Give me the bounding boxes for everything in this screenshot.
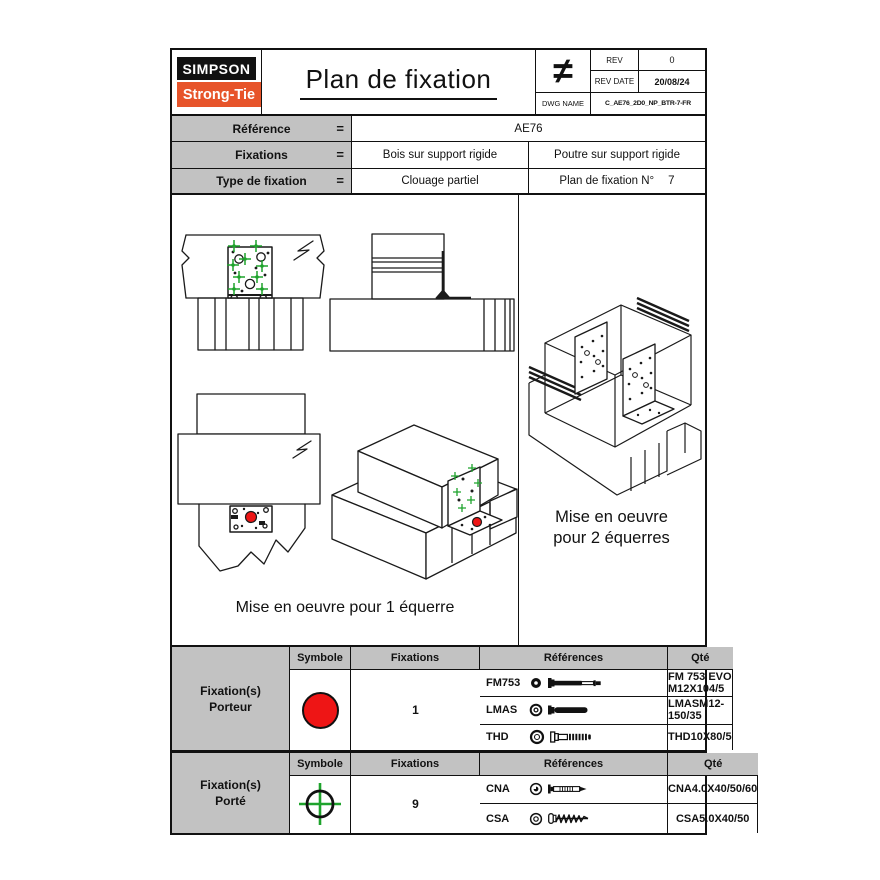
technical-drawing-two-brackets bbox=[519, 195, 704, 645]
reference-label-cell: Référence = bbox=[172, 116, 352, 141]
group-label-porte: Fixation(s) Porté bbox=[172, 753, 290, 833]
ring-end-view-icon bbox=[529, 729, 545, 745]
group-line: Fixation(s) bbox=[200, 683, 261, 699]
reference-cell: FM 753 EVO M12X104/5 bbox=[668, 670, 733, 697]
type-fixation-label-cell: Type de fixation = bbox=[172, 169, 352, 193]
fixations-value-left: Bois sur support rigide bbox=[352, 142, 528, 167]
washer-end-view-icon bbox=[529, 703, 543, 717]
fixation-row-csa: CSA bbox=[480, 804, 668, 833]
projection-symbol-icon: ≠ bbox=[536, 50, 591, 93]
fixation-code: LMAS bbox=[486, 704, 524, 716]
plan-number-value: 7 bbox=[668, 175, 674, 187]
plan-number-cell: Plan de fixation N° 7 bbox=[528, 169, 705, 193]
technical-drawing-one-bracket bbox=[172, 195, 518, 645]
fixation-code: THD bbox=[486, 731, 524, 743]
type-fixation-value: Clouage partiel bbox=[352, 169, 528, 193]
dwg-name-label: DWG NAME bbox=[536, 93, 591, 114]
equals-sign: = bbox=[336, 147, 344, 162]
nail-head-end-view-icon bbox=[529, 782, 543, 796]
plan-number-label: Plan de fixation N° bbox=[559, 175, 654, 187]
fixation-code: CSA bbox=[486, 813, 524, 825]
caption-line: Mise en oeuvre bbox=[519, 507, 704, 528]
rev-date-value: 20/08/24 bbox=[639, 71, 705, 92]
column-header-references: Références bbox=[480, 753, 668, 776]
logo-simpson: SIMPSON bbox=[177, 57, 256, 80]
column-header-qte: Qté bbox=[668, 647, 733, 670]
rev-value: 0 bbox=[639, 50, 705, 71]
qty-cell-porteur: 1 bbox=[351, 670, 480, 750]
fixation-table-porte: Fixation(s) Porté Symbole Fixations Réfé… bbox=[172, 750, 705, 833]
fixation-row-lmas: LMAS bbox=[480, 697, 668, 724]
column-header-fixations: Fixations bbox=[351, 647, 480, 670]
logo-strong-tie: Strong-Tie bbox=[177, 82, 261, 107]
fixation-row-cna: CNA bbox=[480, 776, 668, 805]
fixations-label-cell: Fixations = bbox=[172, 142, 352, 167]
brand-logo: SIMPSON Strong-Tie bbox=[172, 50, 262, 114]
title-block: SIMPSON Strong-Tie Plan de fixation ≠ RE… bbox=[172, 50, 705, 116]
drawing-panel-two-brackets: Mise en oeuvre pour 2 équerres bbox=[518, 195, 705, 645]
dwg-name-value: C_AE76_2D0_NP_BTR-7-FR bbox=[591, 93, 705, 114]
reference-value: AE76 bbox=[352, 116, 705, 141]
group-line: Porteur bbox=[209, 699, 252, 715]
revision-block: ≠ REV 0 REV DATE 20/08/24 DWG NAME C_AE7… bbox=[535, 50, 705, 114]
drawing-panel-one-bracket: Mise en oeuvre pour 1 équerre bbox=[172, 195, 518, 645]
rev-label: REV bbox=[591, 50, 639, 71]
fixation-code: CNA bbox=[486, 783, 524, 795]
group-line: Fixation(s) bbox=[200, 777, 261, 793]
red-dot-marker bbox=[473, 518, 482, 527]
fixation-table-porteur: Fixation(s) Porteur Symbole Fixations Ré… bbox=[172, 645, 705, 750]
sheet-title-cell: Plan de fixation bbox=[262, 50, 535, 114]
red-dot-symbol bbox=[302, 692, 339, 729]
equals-sign: = bbox=[336, 121, 344, 136]
fixation-row-thd: THD bbox=[480, 725, 668, 750]
reference-cell: CNA4.0X40/50/60 bbox=[668, 776, 758, 805]
fixation-code: FM753 bbox=[486, 677, 524, 689]
symbol-cell-porteur bbox=[290, 670, 351, 750]
table-row: Fixations = Bois sur support rigide Pout… bbox=[172, 142, 705, 168]
drawing-area: Mise en oeuvre pour 1 équerre bbox=[172, 195, 705, 645]
reference-cell: LMASM12-150/35 bbox=[668, 697, 733, 724]
qty-cell-porte: 9 bbox=[351, 776, 480, 834]
reference-table: Référence = AE76 Fixations = Bois sur su… bbox=[172, 116, 705, 195]
column-header-references: Références bbox=[480, 647, 668, 670]
csa-screw-icon bbox=[548, 811, 594, 826]
caption-line: pour 2 équerres bbox=[519, 528, 704, 549]
caption-one-bracket: Mise en oeuvre pour 1 équerre bbox=[172, 599, 518, 617]
table-row: Référence = AE76 bbox=[172, 116, 705, 142]
equals-sign: = bbox=[336, 173, 344, 188]
green-crosshair-symbol bbox=[296, 780, 344, 828]
bolt-end-view-icon bbox=[529, 676, 543, 690]
red-dot-marker bbox=[246, 512, 257, 523]
row-label: Type de fixation bbox=[216, 174, 306, 188]
column-header-symbole: Symbole bbox=[290, 753, 351, 776]
reference-cell: THD10X80/5 bbox=[668, 725, 733, 750]
group-line: Porté bbox=[215, 793, 246, 809]
lmas-bolt-icon bbox=[548, 703, 594, 717]
table-row: Type de fixation = Clouage partiel Plan … bbox=[172, 169, 705, 195]
reference-cell: CSA5.0X40/50 bbox=[668, 804, 758, 833]
caption-two-brackets: Mise en oeuvre pour 2 équerres bbox=[519, 507, 704, 549]
thd-screw-icon bbox=[550, 730, 600, 744]
rev-date-label: REV DATE bbox=[591, 71, 639, 92]
row-label: Fixations bbox=[235, 148, 288, 162]
row-label: Référence bbox=[232, 122, 290, 136]
fm753-bolt-icon bbox=[548, 676, 604, 690]
symbol-cell-porte bbox=[290, 776, 351, 834]
column-header-symbole: Symbole bbox=[290, 647, 351, 670]
cna-nail-icon bbox=[548, 782, 592, 796]
fixation-row-fm753: FM753 bbox=[480, 670, 668, 697]
column-header-fixations: Fixations bbox=[351, 753, 480, 776]
fixations-value-right: Poutre sur support rigide bbox=[528, 142, 705, 167]
screw-head-end-view-icon bbox=[529, 812, 543, 826]
drawing-sheet: SIMPSON Strong-Tie Plan de fixation ≠ RE… bbox=[170, 48, 707, 835]
column-header-qte: Qté bbox=[668, 753, 758, 776]
group-label-porteur: Fixation(s) Porteur bbox=[172, 647, 290, 750]
page-title: Plan de fixation bbox=[300, 64, 498, 100]
